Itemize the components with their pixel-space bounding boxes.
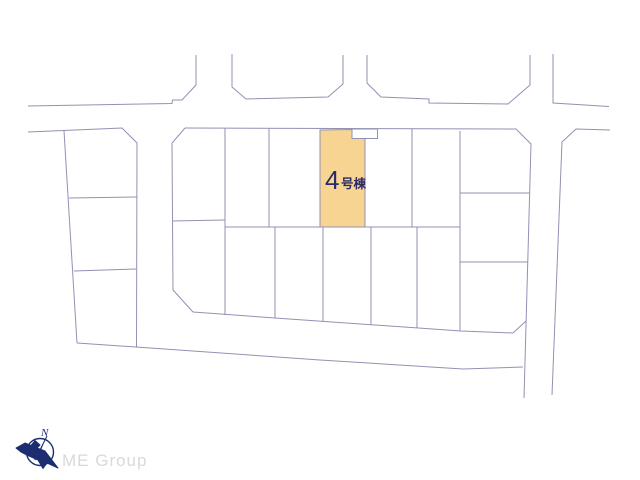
compass-north-letter: N: [40, 427, 49, 439]
map-lines: [28, 54, 610, 398]
lot-4-label-number: 4: [325, 165, 339, 195]
company-logo: N ME Group: [16, 427, 147, 470]
lot-4-label-suffix: 号棟: [341, 176, 367, 191]
site-plan-drawing: 4 号棟 N ME Group: [0, 0, 640, 480]
lot-top-notch: [352, 129, 378, 139]
site-plan-canvas: 4 号棟 N ME Group: [0, 0, 640, 480]
company-name: ME Group: [62, 451, 147, 470]
